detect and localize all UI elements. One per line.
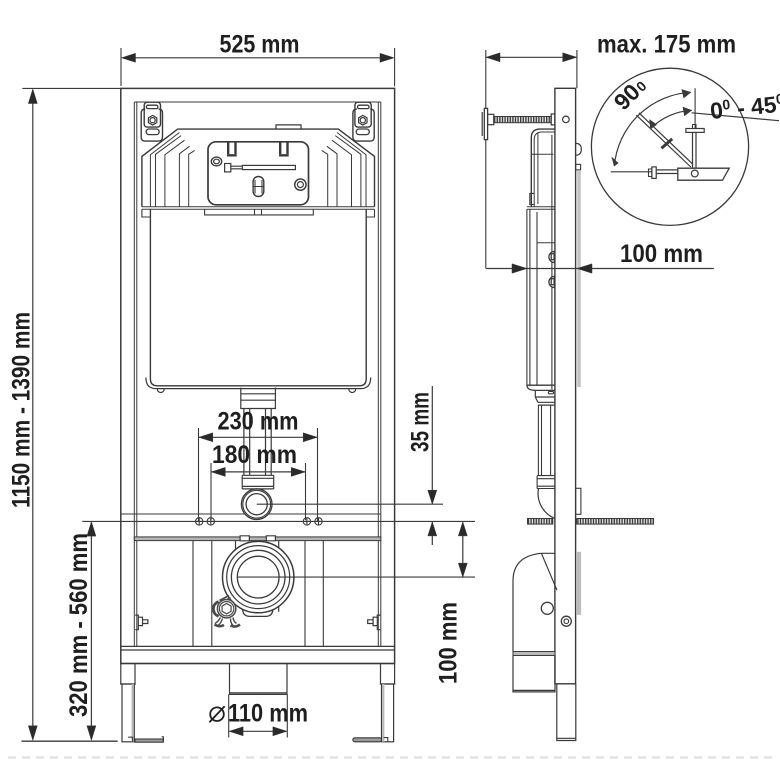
svg-text:100 mm: 100 mm (620, 240, 703, 268)
svg-text:230 mm: 230 mm (218, 408, 299, 436)
svg-text:110 mm: 110 mm (228, 700, 308, 728)
svg-text:180 mm: 180 mm (212, 441, 297, 469)
svg-text:320 mm - 560 mm: 320 mm - 560 mm (65, 533, 93, 717)
svg-text:max. 175 mm: max. 175 mm (597, 31, 736, 59)
svg-text:00 - 450: 00 - 450 (709, 90, 780, 124)
svg-text:1150 mm - 1390 mm: 1150 mm - 1390 mm (8, 312, 36, 508)
svg-text:35 mm: 35 mm (407, 392, 435, 452)
svg-text:100 mm: 100 mm (435, 602, 463, 684)
svg-text:525 mm: 525 mm (220, 31, 300, 59)
